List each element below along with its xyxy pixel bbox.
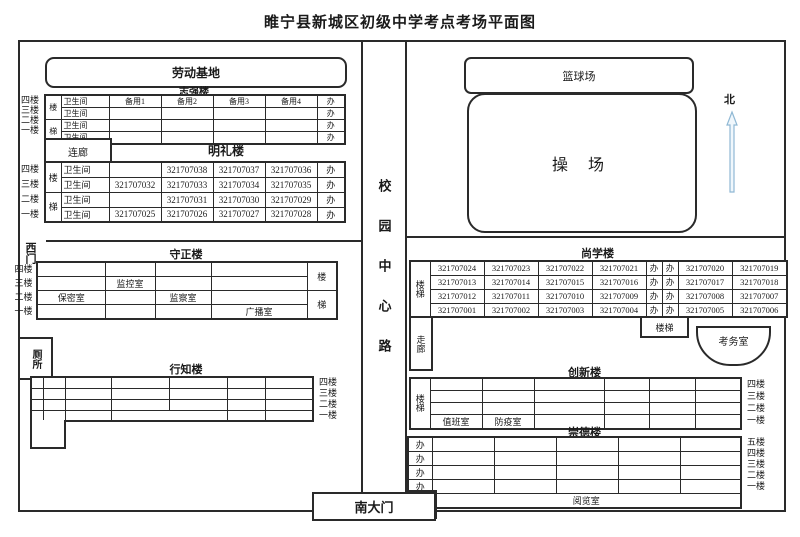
- room-cell: [105, 290, 155, 304]
- exam-room-cell: 321707034: [213, 177, 265, 192]
- page-title: 睢宁县新城区初级中学考点考场平面图: [0, 11, 800, 32]
- floor-label: 二楼: [17, 191, 43, 206]
- office-cell: 办: [317, 177, 345, 192]
- floor-label: 一楼: [11, 303, 36, 317]
- exam-room-cell: 321707026: [161, 207, 213, 222]
- exam-room-cell: 321707033: [161, 177, 213, 192]
- floor-label: 四楼: [743, 377, 769, 389]
- exam-room-cell: 321707020: [678, 261, 732, 275]
- exam-room-cell: 321707035: [265, 177, 317, 192]
- room-cell: [482, 378, 534, 390]
- monitor-room-cell: 监控室: [105, 276, 155, 290]
- room-cell: [556, 466, 618, 480]
- exam-room-cell: 321707001: [430, 303, 484, 317]
- office-cell: 办: [317, 207, 345, 222]
- spare-room-cell: 备用4: [265, 95, 317, 108]
- stair-cell: 梯: [307, 290, 337, 319]
- room-cell: [618, 480, 680, 494]
- wc-cell: 卫生间: [61, 95, 109, 108]
- room-cell: [37, 276, 105, 290]
- basketball-court-label: 篮球场: [563, 68, 596, 84]
- room-cell: [604, 390, 649, 402]
- room-cell: [494, 437, 556, 452]
- exam-room-cell: 321707004: [592, 303, 646, 317]
- exam-room-cell: 321707038: [161, 162, 213, 177]
- shangxue-title: 尚学楼: [409, 245, 786, 261]
- exam-room-cell: 321707016: [592, 275, 646, 289]
- floor-label: 三楼: [17, 176, 43, 191]
- room-cell: [432, 466, 494, 480]
- toilet-label: 厕所: [28, 349, 43, 369]
- room-cell: [155, 262, 211, 276]
- room-cell: [65, 377, 111, 388]
- mingli-table: 楼 卫生间 321707038 321707037 321707036 办 卫生…: [44, 161, 346, 223]
- room-cell: [111, 399, 169, 410]
- exam-room-cell: 321707021: [592, 261, 646, 275]
- floor-label: 一楼: [743, 413, 769, 425]
- playground-box: 操 场: [467, 93, 697, 233]
- room-cell: [265, 377, 313, 388]
- corridor-cell: [31, 377, 43, 388]
- room-cell: [161, 108, 213, 120]
- room-cell: [109, 108, 161, 120]
- stair-cell: 梯: [45, 192, 61, 222]
- stairs-box: 楼梯: [640, 316, 689, 338]
- room-cell: [432, 437, 494, 452]
- playground-label: 操 场: [552, 151, 612, 175]
- room-cell: [111, 388, 169, 399]
- exam-room-cell: [109, 162, 161, 177]
- wc-cell: 卫生间: [61, 177, 109, 192]
- spare-room-cell: 备用2: [161, 95, 213, 108]
- office-cell: 办: [662, 275, 678, 289]
- office-cell: 办: [646, 303, 662, 317]
- exam-room-cell: 321707029: [265, 192, 317, 207]
- room-cell: [430, 378, 482, 390]
- room-cell: [111, 377, 169, 388]
- office-cell: 办: [317, 108, 345, 120]
- room-cell: [556, 480, 618, 494]
- floor-label: 四楼: [11, 261, 36, 275]
- room-cell: [105, 304, 155, 319]
- room-cell: [604, 402, 649, 414]
- room-cell: [432, 480, 494, 494]
- room-cell: [534, 402, 604, 414]
- office-cell: 办: [408, 466, 432, 480]
- north-arrow-icon: [725, 110, 739, 194]
- room-cell: [680, 437, 741, 452]
- room-cell: [265, 399, 313, 410]
- room-cell: [680, 452, 741, 466]
- room-cell: [211, 276, 307, 290]
- zhiqiang-floor-labels: 四楼 三楼 二楼 一楼: [17, 94, 43, 134]
- office-cell: 办: [662, 289, 678, 303]
- room-cell: [37, 262, 105, 276]
- room-cell: [556, 437, 618, 452]
- floor-label: 一楼: [315, 409, 341, 420]
- office-cell: 办: [646, 261, 662, 275]
- secrecy-room-cell: 保密室: [37, 290, 105, 304]
- exam-room-cell: 321707031: [161, 192, 213, 207]
- room-cell: [649, 402, 695, 414]
- chuangxin-floor-labels: 四楼 三楼 二楼 一楼: [743, 377, 769, 425]
- office-cell: 办: [317, 95, 345, 108]
- exam-room-cell: 321707007: [732, 289, 787, 303]
- room-cell: [695, 378, 741, 390]
- room-cell: [105, 262, 155, 276]
- exam-room-cell: 321707008: [678, 289, 732, 303]
- floor-label: 二楼: [11, 289, 36, 303]
- exam-room-cell: [109, 192, 161, 207]
- room-cell: [213, 108, 265, 120]
- wc-cell: 卫生间: [61, 120, 109, 132]
- reading-room-cell: 阅览室: [432, 494, 741, 509]
- shangxue-table: 楼梯 321707024 321707023 321707022 3217070…: [409, 260, 788, 318]
- office-cell: 办: [317, 120, 345, 132]
- room-cell: [227, 377, 265, 388]
- room-cell: [649, 378, 695, 390]
- floor-label: 二楼: [743, 401, 769, 413]
- room-cell: [265, 120, 317, 132]
- xingzhi-floor-labels: 四楼 三楼 二楼 一楼: [315, 376, 341, 420]
- floor-label: 一楼: [17, 206, 43, 221]
- room-cell: [556, 452, 618, 466]
- room-cell: [265, 108, 317, 120]
- road-label: 校园中心路: [375, 179, 394, 379]
- office-cell: 办: [408, 437, 432, 452]
- room-cell: [482, 402, 534, 414]
- stair-cell: 楼梯: [410, 378, 430, 429]
- room-cell: [265, 410, 313, 421]
- exam-room-cell: 321707022: [538, 261, 592, 275]
- room-cell: [482, 390, 534, 402]
- exam-room-cell: 321707028: [265, 207, 317, 222]
- exam-office-label: 考务室: [719, 337, 749, 348]
- corridor-cell: [43, 377, 65, 388]
- room-cell: [37, 304, 105, 319]
- room-cell: [430, 390, 482, 402]
- exam-room-cell: 321707009: [592, 289, 646, 303]
- corridor-cell: [31, 399, 43, 410]
- room-cell: [155, 276, 211, 290]
- exam-room-cell: 321707014: [484, 275, 538, 289]
- exam-room-cell: 321707032: [109, 177, 161, 192]
- room-cell: [494, 480, 556, 494]
- exam-room-cell: 321707023: [484, 261, 538, 275]
- room-cell: [169, 377, 227, 388]
- exam-room-cell: 321707003: [538, 303, 592, 317]
- room-cell: [534, 390, 604, 402]
- exam-room-cell: 321707036: [265, 162, 317, 177]
- room-cell: [161, 120, 213, 132]
- toilet-box: 厕所: [18, 337, 53, 380]
- broadcast-room-cell: 广播室: [211, 304, 307, 319]
- room-cell: [65, 388, 111, 399]
- chongde-floor-labels: 五楼 四楼 三楼 二楼 一楼: [743, 436, 769, 491]
- office-cell: 办: [317, 162, 345, 177]
- room-cell: [604, 378, 649, 390]
- room-cell: [680, 466, 741, 480]
- shouzheng-title: 守正楼: [36, 246, 336, 262]
- exam-room-cell: 321707024: [430, 261, 484, 275]
- room-cell: [211, 290, 307, 304]
- right-divider-line: [405, 236, 784, 238]
- exam-room-cell: 321707037: [213, 162, 265, 177]
- corridor-box: 走廊: [409, 316, 433, 371]
- room-cell: [155, 304, 211, 319]
- room-cell: [494, 466, 556, 480]
- campus-map: 睢宁县新城区初级中学考点考场平面图 校园中心路 劳动基地 志强楼 四楼 三楼 二…: [0, 0, 800, 537]
- room-cell: [494, 452, 556, 466]
- floor-label: 一楼: [17, 124, 43, 134]
- stair-cell: 楼: [307, 262, 337, 290]
- office-cell: 办: [646, 275, 662, 289]
- wc-cell: 卫生间: [61, 207, 109, 222]
- room-cell: [618, 466, 680, 480]
- exam-room-cell: 321707012: [430, 289, 484, 303]
- room-cell: [432, 452, 494, 466]
- room-cell: [430, 402, 482, 414]
- room-cell: [211, 262, 307, 276]
- basketball-court-box: 篮球场: [464, 57, 694, 94]
- room-cell: [227, 388, 265, 399]
- room-cell: [618, 437, 680, 452]
- corridor-label: 走廊: [415, 335, 428, 353]
- room-cell: [695, 402, 741, 414]
- corridor-cell: [43, 388, 65, 399]
- room-cell: [680, 480, 741, 494]
- stair-cell: 楼梯: [410, 261, 430, 317]
- exam-room-cell: 321707017: [678, 275, 732, 289]
- exam-room-cell: 321707025: [109, 207, 161, 222]
- exam-room-cell: 321707002: [484, 303, 538, 317]
- office-cell: 办: [662, 261, 678, 275]
- office-cell: 办: [662, 303, 678, 317]
- office-cell: 办: [317, 192, 345, 207]
- office-cell: 办: [646, 289, 662, 303]
- xingzhi-wing: [30, 433, 66, 449]
- south-gate-label: 南大门: [354, 497, 393, 516]
- inspection-room-cell: 监察室: [155, 290, 211, 304]
- stair-cell: 楼: [45, 162, 61, 192]
- north-label: 北: [724, 91, 735, 107]
- room-cell: [227, 399, 265, 410]
- road-label-wrap: 校园中心路: [361, 148, 407, 410]
- exam-room-cell: 321707018: [732, 275, 787, 289]
- chuangxin-table: 楼梯 值班室 防疫室: [409, 377, 742, 430]
- west-gate-line: [46, 240, 361, 242]
- room-cell: [169, 388, 227, 399]
- labor-base-label: 劳动基地: [172, 64, 220, 81]
- chongde-table: 办 办 办 办 办 阅览室: [407, 436, 742, 509]
- mingli-floor-labels: 四楼 三楼 二楼 一楼: [17, 161, 43, 221]
- room-cell: [265, 388, 313, 399]
- room-cell: [65, 399, 111, 410]
- room-cell: [227, 410, 265, 421]
- stair-cell: 楼: [45, 95, 61, 120]
- shouzheng-floor-labels: 四楼 三楼 二楼 一楼: [11, 261, 36, 317]
- room-cell: [169, 399, 227, 410]
- south-gate-box: 南大门: [312, 492, 436, 521]
- stairs-label: 楼梯: [655, 321, 673, 334]
- mingli-title: 明礼楼: [108, 142, 344, 159]
- exam-room-cell: 321707010: [538, 289, 592, 303]
- wc-cell: 卫生间: [61, 108, 109, 120]
- exam-room-cell: 321707005: [678, 303, 732, 317]
- room-cell: [649, 390, 695, 402]
- floor-label: 三楼: [743, 389, 769, 401]
- exam-room-cell: 321707019: [732, 261, 787, 275]
- corridor-cell: [31, 388, 43, 399]
- exam-room-cell: 321707006: [732, 303, 787, 317]
- wc-cell: 卫生间: [61, 162, 109, 177]
- room-cell: [109, 120, 161, 132]
- room-cell: [65, 410, 111, 421]
- shouzheng-table: 楼 监控室 保密室 监察室 梯 广播室: [36, 261, 338, 320]
- xingzhi-table: [30, 376, 314, 422]
- exam-room-cell: 321707030: [213, 192, 265, 207]
- corridor-link-label: 连廊: [68, 144, 88, 159]
- wc-cell: 卫生间: [61, 192, 109, 207]
- room-cell: [534, 378, 604, 390]
- exam-room-cell: 321707027: [213, 207, 265, 222]
- floor-label: 一楼: [743, 480, 769, 491]
- floor-label: 四楼: [17, 161, 43, 176]
- spare-room-cell: 备用1: [109, 95, 161, 108]
- exam-room-cell: 321707013: [430, 275, 484, 289]
- xingzhi-title: 行知楼: [60, 361, 312, 377]
- exam-room-cell: 321707011: [484, 289, 538, 303]
- corridor-cell: [43, 399, 65, 410]
- spare-room-cell: 备用3: [213, 95, 265, 108]
- room-cell: [213, 120, 265, 132]
- office-cell: 办: [408, 452, 432, 466]
- room-cell: [111, 410, 227, 421]
- room-cell: [618, 452, 680, 466]
- floor-label: 三楼: [11, 275, 36, 289]
- room-cell: [695, 390, 741, 402]
- exam-room-cell: 321707015: [538, 275, 592, 289]
